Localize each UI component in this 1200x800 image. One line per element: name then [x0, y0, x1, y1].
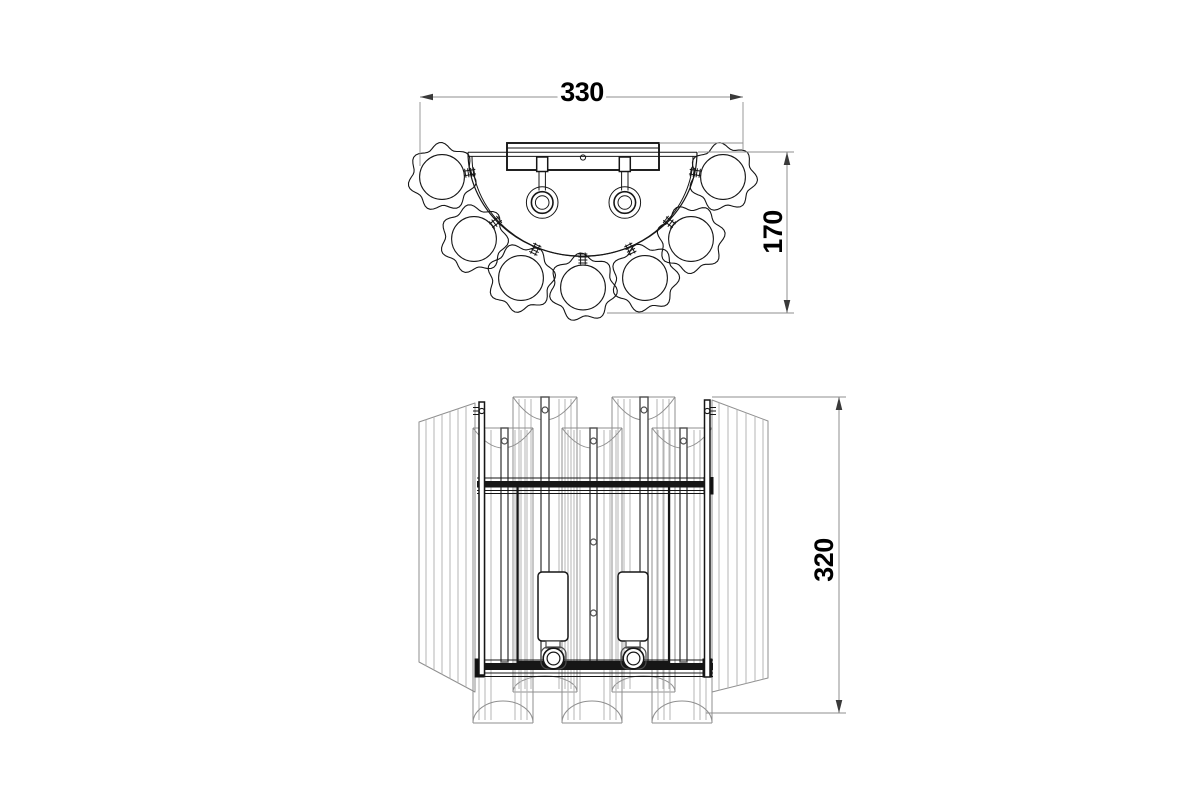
dim-depth-label: 170: [758, 210, 788, 254]
top-view-semicircular-sconce: [409, 143, 758, 321]
lamp-technical-drawing: 330 170 320: [0, 0, 1200, 800]
drawing-page: 330 170 320: [0, 0, 1200, 800]
dim-height-label: 320: [809, 538, 839, 582]
front-view-crystal-sconce: [419, 397, 768, 723]
dim-width-label: 330: [560, 77, 604, 107]
